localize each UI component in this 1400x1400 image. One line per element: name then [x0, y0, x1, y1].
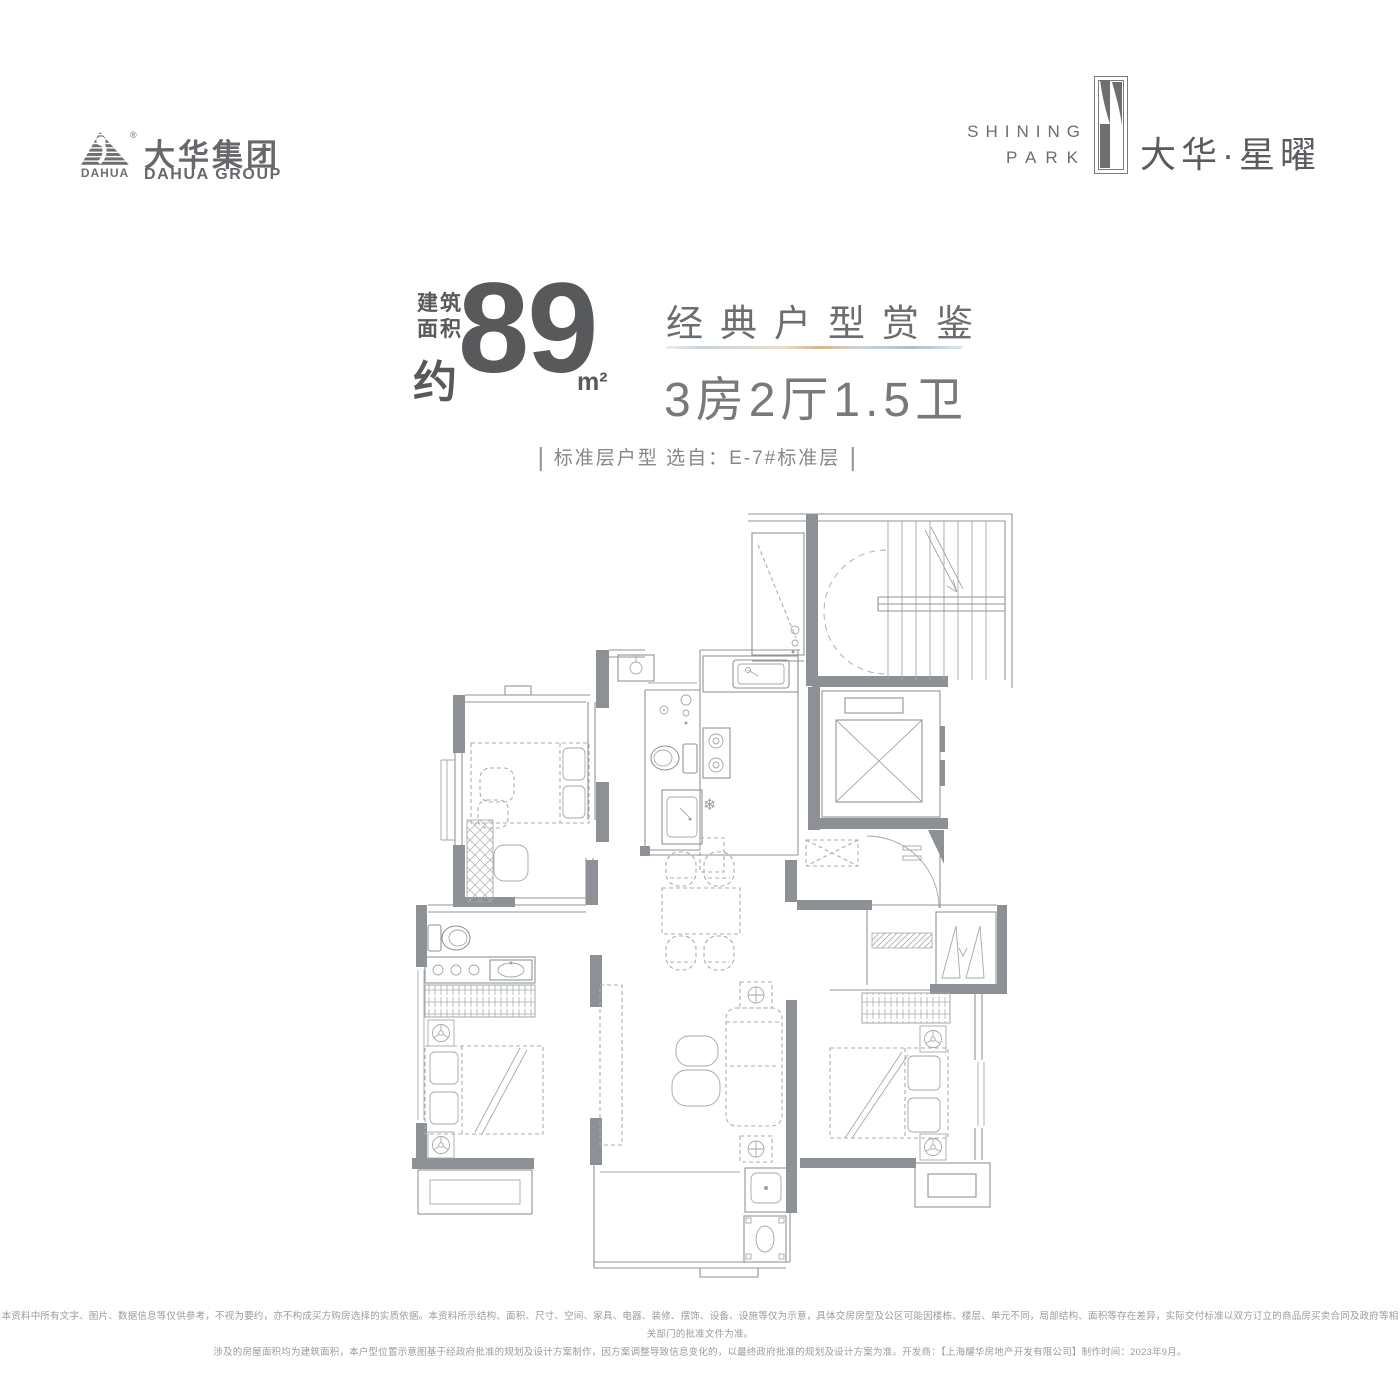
- area-approx: 约: [413, 346, 457, 410]
- project-name-en-line2: PARK: [925, 148, 1087, 168]
- living-room: [600, 982, 782, 1162]
- area-label-line1: 建筑: [417, 291, 463, 317]
- disclaimer: 本资料中所有文字、图片、数据信息等仅供参考，不视为要约，亦不构成买方购房选择的实…: [0, 1308, 1400, 1362]
- elevator-shaft: [822, 691, 945, 817]
- disclaimer-line2: 涉及的房屋面积均为建筑面积，本户型位置示意图基于经政府批准的规划及设计方案制作，…: [0, 1344, 1400, 1362]
- brand-name-en: DAHUA GROUP: [144, 166, 282, 184]
- dahua-logo-icon: [80, 131, 130, 167]
- dahua-logo-wordmark: DAHUA: [78, 166, 132, 180]
- area-label: 建筑 面积: [417, 291, 463, 343]
- master-bedroom: [830, 990, 990, 1207]
- area-label-line2: 面积: [417, 317, 463, 343]
- layout-spec: 3房2厅1.5卫: [664, 360, 968, 430]
- series-title: 经典户型赏鉴: [666, 293, 990, 347]
- project-name-en-line1: SHINING: [925, 122, 1087, 142]
- project-name-en: SHINING PARK: [925, 122, 1087, 168]
- area-value: 89: [458, 262, 596, 396]
- selection-note: 标准层户型 选自：E-7#标准层: [540, 447, 854, 471]
- entry-porch: [867, 905, 997, 986]
- svg-text:❄: ❄: [703, 795, 716, 814]
- dining-area: [662, 852, 740, 970]
- disclaimer-line1: 本资料中所有文字、图片、数据信息等仅供参考，不视为要约，亦不构成买方购房选择的实…: [0, 1308, 1400, 1344]
- shining-park-logo-icon: [1094, 76, 1128, 174]
- shower-room: [752, 533, 804, 661]
- floor-plan: ❄: [390, 500, 1020, 1280]
- walls: [412, 514, 1007, 1213]
- accent-gradient-line: [666, 346, 962, 349]
- poster: DAHUA ® 大华集团 DAHUA GROUP SHINING PARK 大华…: [0, 0, 1400, 1400]
- area-unit: m²: [577, 368, 608, 397]
- registered-mark: ®: [130, 130, 137, 140]
- balcony: [594, 1165, 790, 1277]
- stairwell: [748, 514, 1012, 688]
- entry: [806, 835, 940, 908]
- project-name-cn: 大华·星曜: [1140, 126, 1321, 178]
